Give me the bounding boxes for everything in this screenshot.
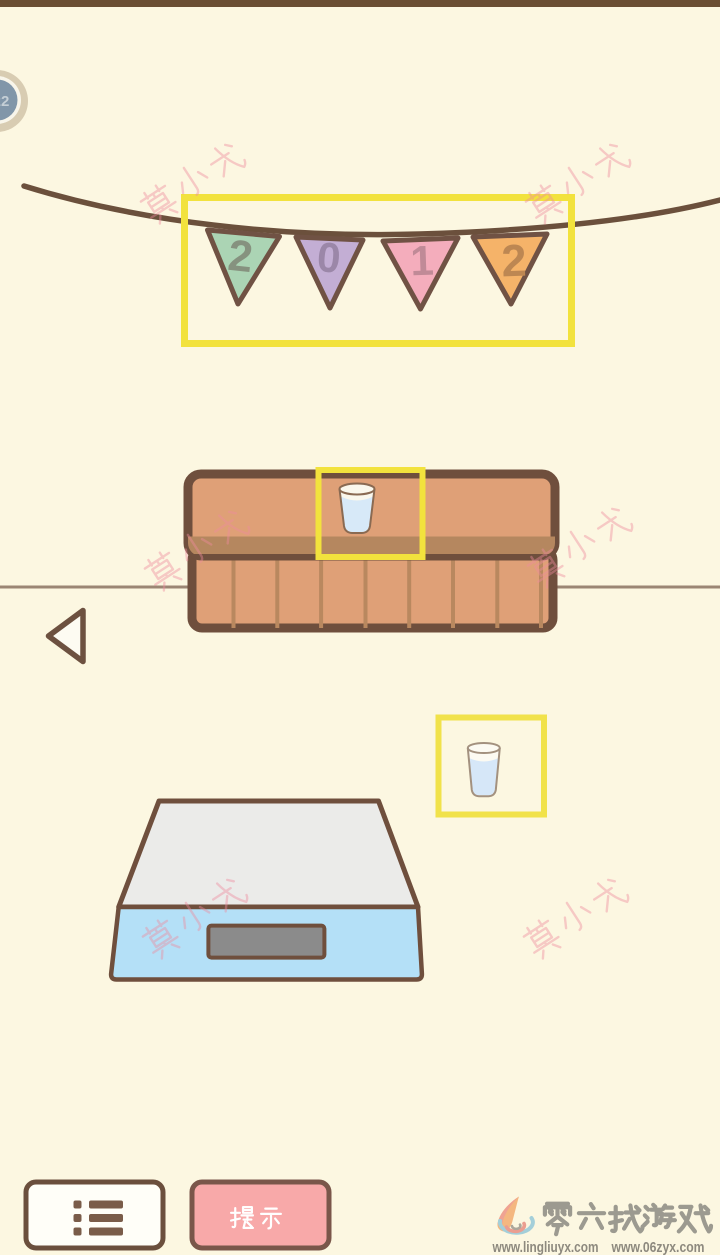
svg-text:www.06zyx.com: www.06zyx.com [611,1239,705,1255]
svg-text:1: 1 [410,237,435,285]
svg-text:22: 22 [0,93,9,110]
svg-text:0: 0 [315,233,342,282]
svg-text:2: 2 [226,231,255,282]
svg-text:2: 2 [501,235,528,287]
svg-text:www.lingliuyx.com: www.lingliuyx.com [492,1239,599,1255]
